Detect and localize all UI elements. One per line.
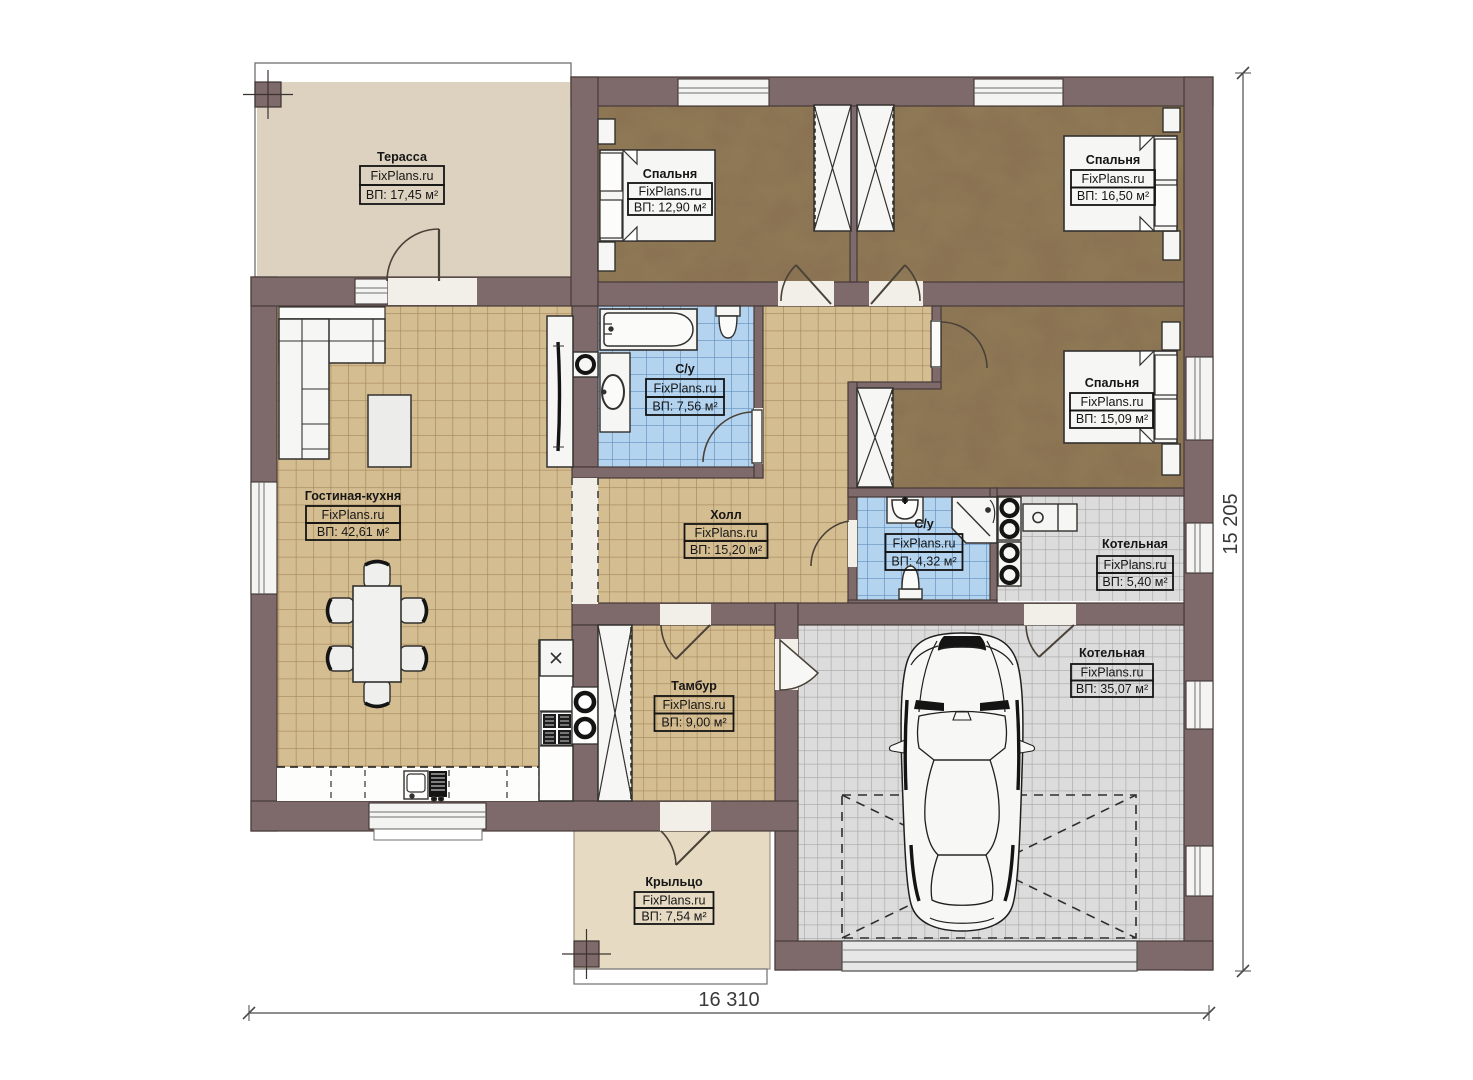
svg-text:ВП: 16,50 м²: ВП: 16,50 м² [1077,189,1149,203]
svg-text:ВП: 4,32 м²: ВП: 4,32 м² [891,555,956,569]
svg-text:FixPlans.ru: FixPlans.ru [322,508,385,522]
svg-text:FixPlans.ru: FixPlans.ru [654,382,717,396]
svg-text:Крыльцо: Крыльцо [645,875,703,889]
svg-text:ВП: 12,90 м²: ВП: 12,90 м² [634,201,706,215]
svg-text:Котельная: Котельная [1102,537,1168,551]
svg-text:FixPlans.ru: FixPlans.ru [639,185,702,199]
svg-text:ВП: 7,54 м²: ВП: 7,54 м² [641,910,706,924]
svg-text:Котельная: Котельная [1079,646,1145,660]
svg-text:FixPlans.ru: FixPlans.ru [371,169,434,183]
svg-text:FixPlans.ru: FixPlans.ru [1082,172,1145,186]
svg-text:С/у: С/у [914,517,934,531]
svg-text:Спальня: Спальня [1085,376,1139,390]
svg-text:ВП: 5,40 м²: ВП: 5,40 м² [1102,575,1167,589]
svg-text:FixPlans.ru: FixPlans.ru [893,537,956,551]
svg-text:С/у: С/у [675,362,695,376]
svg-text:FixPlans.ru: FixPlans.ru [643,894,706,908]
svg-text:ВП: 35,07 м²: ВП: 35,07 м² [1076,682,1148,696]
svg-text:FixPlans.ru: FixPlans.ru [1081,395,1144,409]
svg-text:16 310: 16 310 [698,989,759,1011]
svg-text:Спальня: Спальня [1086,153,1140,167]
svg-text:Тамбур: Тамбур [671,679,717,693]
svg-text:ВП: 7,56 м²: ВП: 7,56 м² [652,400,717,414]
svg-text:ВП: 9,00 м²: ВП: 9,00 м² [661,716,726,730]
svg-text:ВП: 15,09 м²: ВП: 15,09 м² [1076,412,1148,426]
svg-text:FixPlans.ru: FixPlans.ru [663,698,726,712]
svg-text:Гостиная-кухня: Гостиная-кухня [305,489,402,503]
svg-text:Спальня: Спальня [643,167,697,181]
svg-text:ВП: 15,20 м²: ВП: 15,20 м² [690,543,762,557]
svg-text:FixPlans.ru: FixPlans.ru [695,526,758,540]
svg-text:FixPlans.ru: FixPlans.ru [1081,666,1144,680]
svg-text:Терасса: Терасса [377,150,428,164]
svg-text:Холл: Холл [710,508,742,522]
svg-text:FixPlans.ru: FixPlans.ru [1104,558,1167,572]
svg-text:15 205: 15 205 [1220,493,1242,554]
svg-text:ВП: 42,61 м²: ВП: 42,61 м² [317,525,389,539]
svg-text:ВП: 17,45 м²: ВП: 17,45 м² [366,188,438,202]
